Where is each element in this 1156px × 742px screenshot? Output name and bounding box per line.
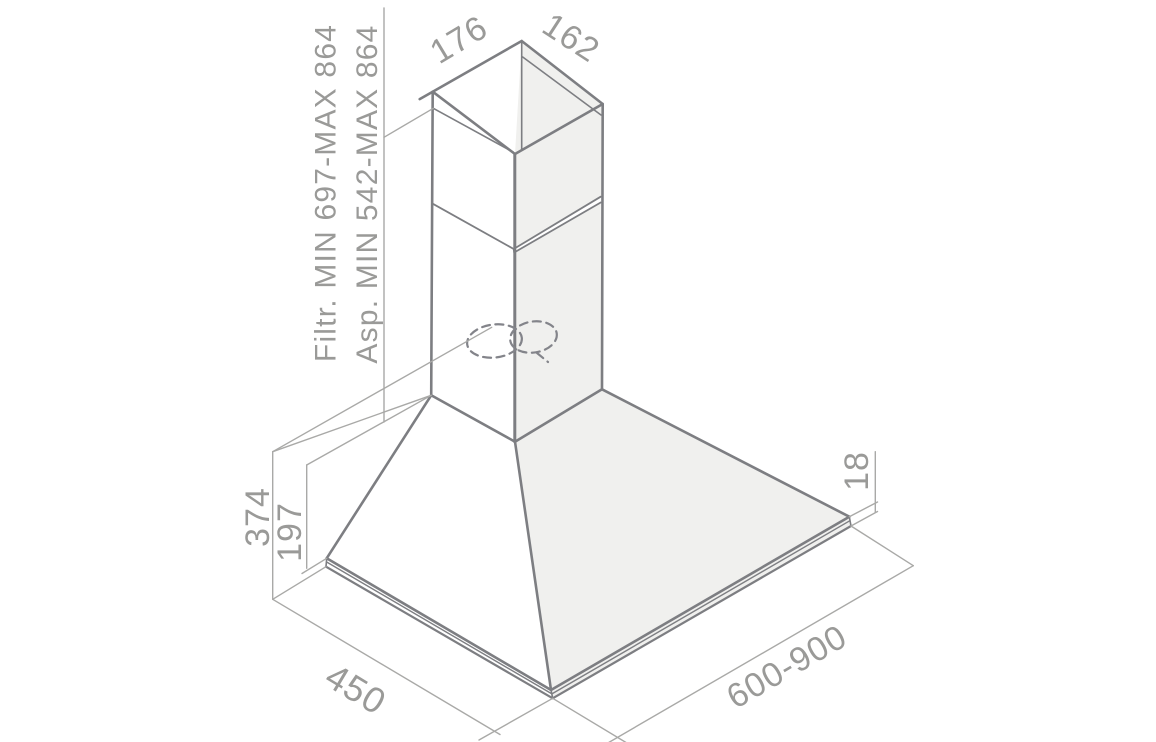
front-tip-extensions (479, 698, 626, 742)
rim-right-extension (851, 526, 913, 566)
technical-drawing: 176 162 Filtr. MIN 697-MAX 864 Asp. MIN … (0, 0, 1156, 742)
label-depth: 450 (318, 655, 393, 723)
dim-18-extensions (849, 502, 877, 526)
chimney-right-edge (602, 104, 603, 389)
label-filter-height: Filtr. MIN 697-MAX 864 (309, 24, 342, 362)
label-duct-height: Asp. MIN 542-MAX 864 (351, 24, 384, 363)
label-rim-thickness: 18 (838, 451, 876, 491)
label-width-range: 600-900 (720, 618, 853, 717)
chimney-left-edge (431, 92, 433, 396)
dim-374-extension (273, 395, 432, 451)
height-top-extension (384, 108, 433, 137)
dim-450-line (273, 599, 500, 734)
rim-left-extensions (273, 558, 327, 599)
cooker-hood-isometric-diagram: 176 162 Filtr. MIN 697-MAX 864 Asp. MIN … (0, 0, 1156, 742)
hood-left-ridge (327, 395, 432, 558)
dim-197-extension (307, 395, 432, 465)
label-lower-height: 197 (271, 502, 309, 562)
